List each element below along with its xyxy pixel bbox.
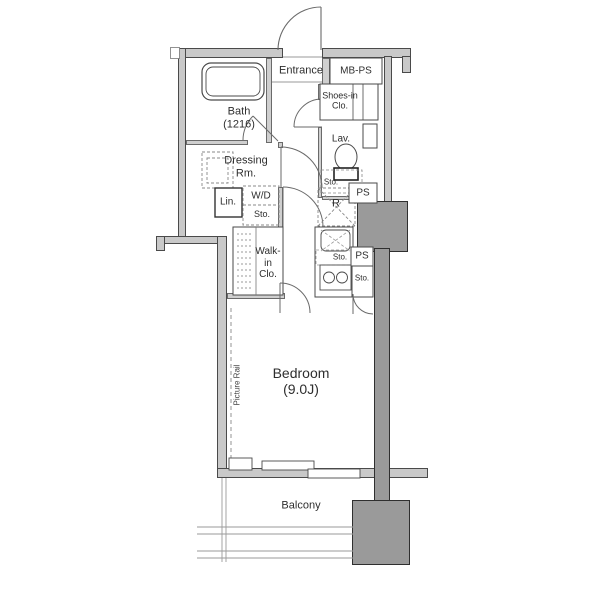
sliding-window — [262, 461, 360, 478]
balcony-divider — [222, 478, 226, 562]
ps-upper-label: PS — [356, 187, 369, 199]
refrigerator-label: R — [332, 198, 340, 211]
bedroom-label: Bedroom (9.0J) — [273, 365, 330, 397]
dressing-door-arc — [281, 147, 322, 188]
lav-sto-label: Sto. — [324, 177, 338, 186]
front-door-arc — [278, 7, 321, 50]
lav-cabinet — [363, 124, 377, 148]
wd-label: W/D — [251, 190, 270, 202]
shoes-in-clo-label: Shoes-in Clo. — [322, 91, 358, 112]
bedroom-door-arc-left — [280, 283, 310, 313]
wall-end-cap — [171, 48, 180, 59]
corridor-door-arc — [283, 187, 323, 227]
window-sill-step — [229, 458, 252, 470]
entrance-label: Entrance — [279, 65, 323, 78]
side-sto-label: Sto. — [355, 273, 369, 282]
ps-lower-label: PS — [355, 250, 368, 262]
lin-label: Lin. — [220, 196, 236, 208]
lav-door-arc — [294, 99, 322, 127]
lav-label: Lav. — [332, 133, 350, 145]
mb-ps-label: MB-PS — [340, 65, 372, 77]
balcony-label: Balcony — [281, 500, 320, 513]
kitchen-counter — [315, 227, 353, 297]
picture-rail-label: Picture Rail — [233, 365, 242, 406]
balcony-railing — [197, 527, 354, 558]
walk-in-clo-label: Walk- in Clo. — [255, 246, 280, 281]
floor-plan: Entrance MB-PS Shoes-in Clo. Bath (1216)… — [0, 0, 600, 600]
wd-sto-label: Sto. — [254, 209, 270, 219]
kitchen-sto-label: Sto. — [333, 252, 347, 261]
bathtub — [202, 63, 264, 100]
bath-label: Bath (1216) — [223, 105, 255, 130]
dressing-rm-label: Dressing Rm. — [224, 154, 267, 179]
